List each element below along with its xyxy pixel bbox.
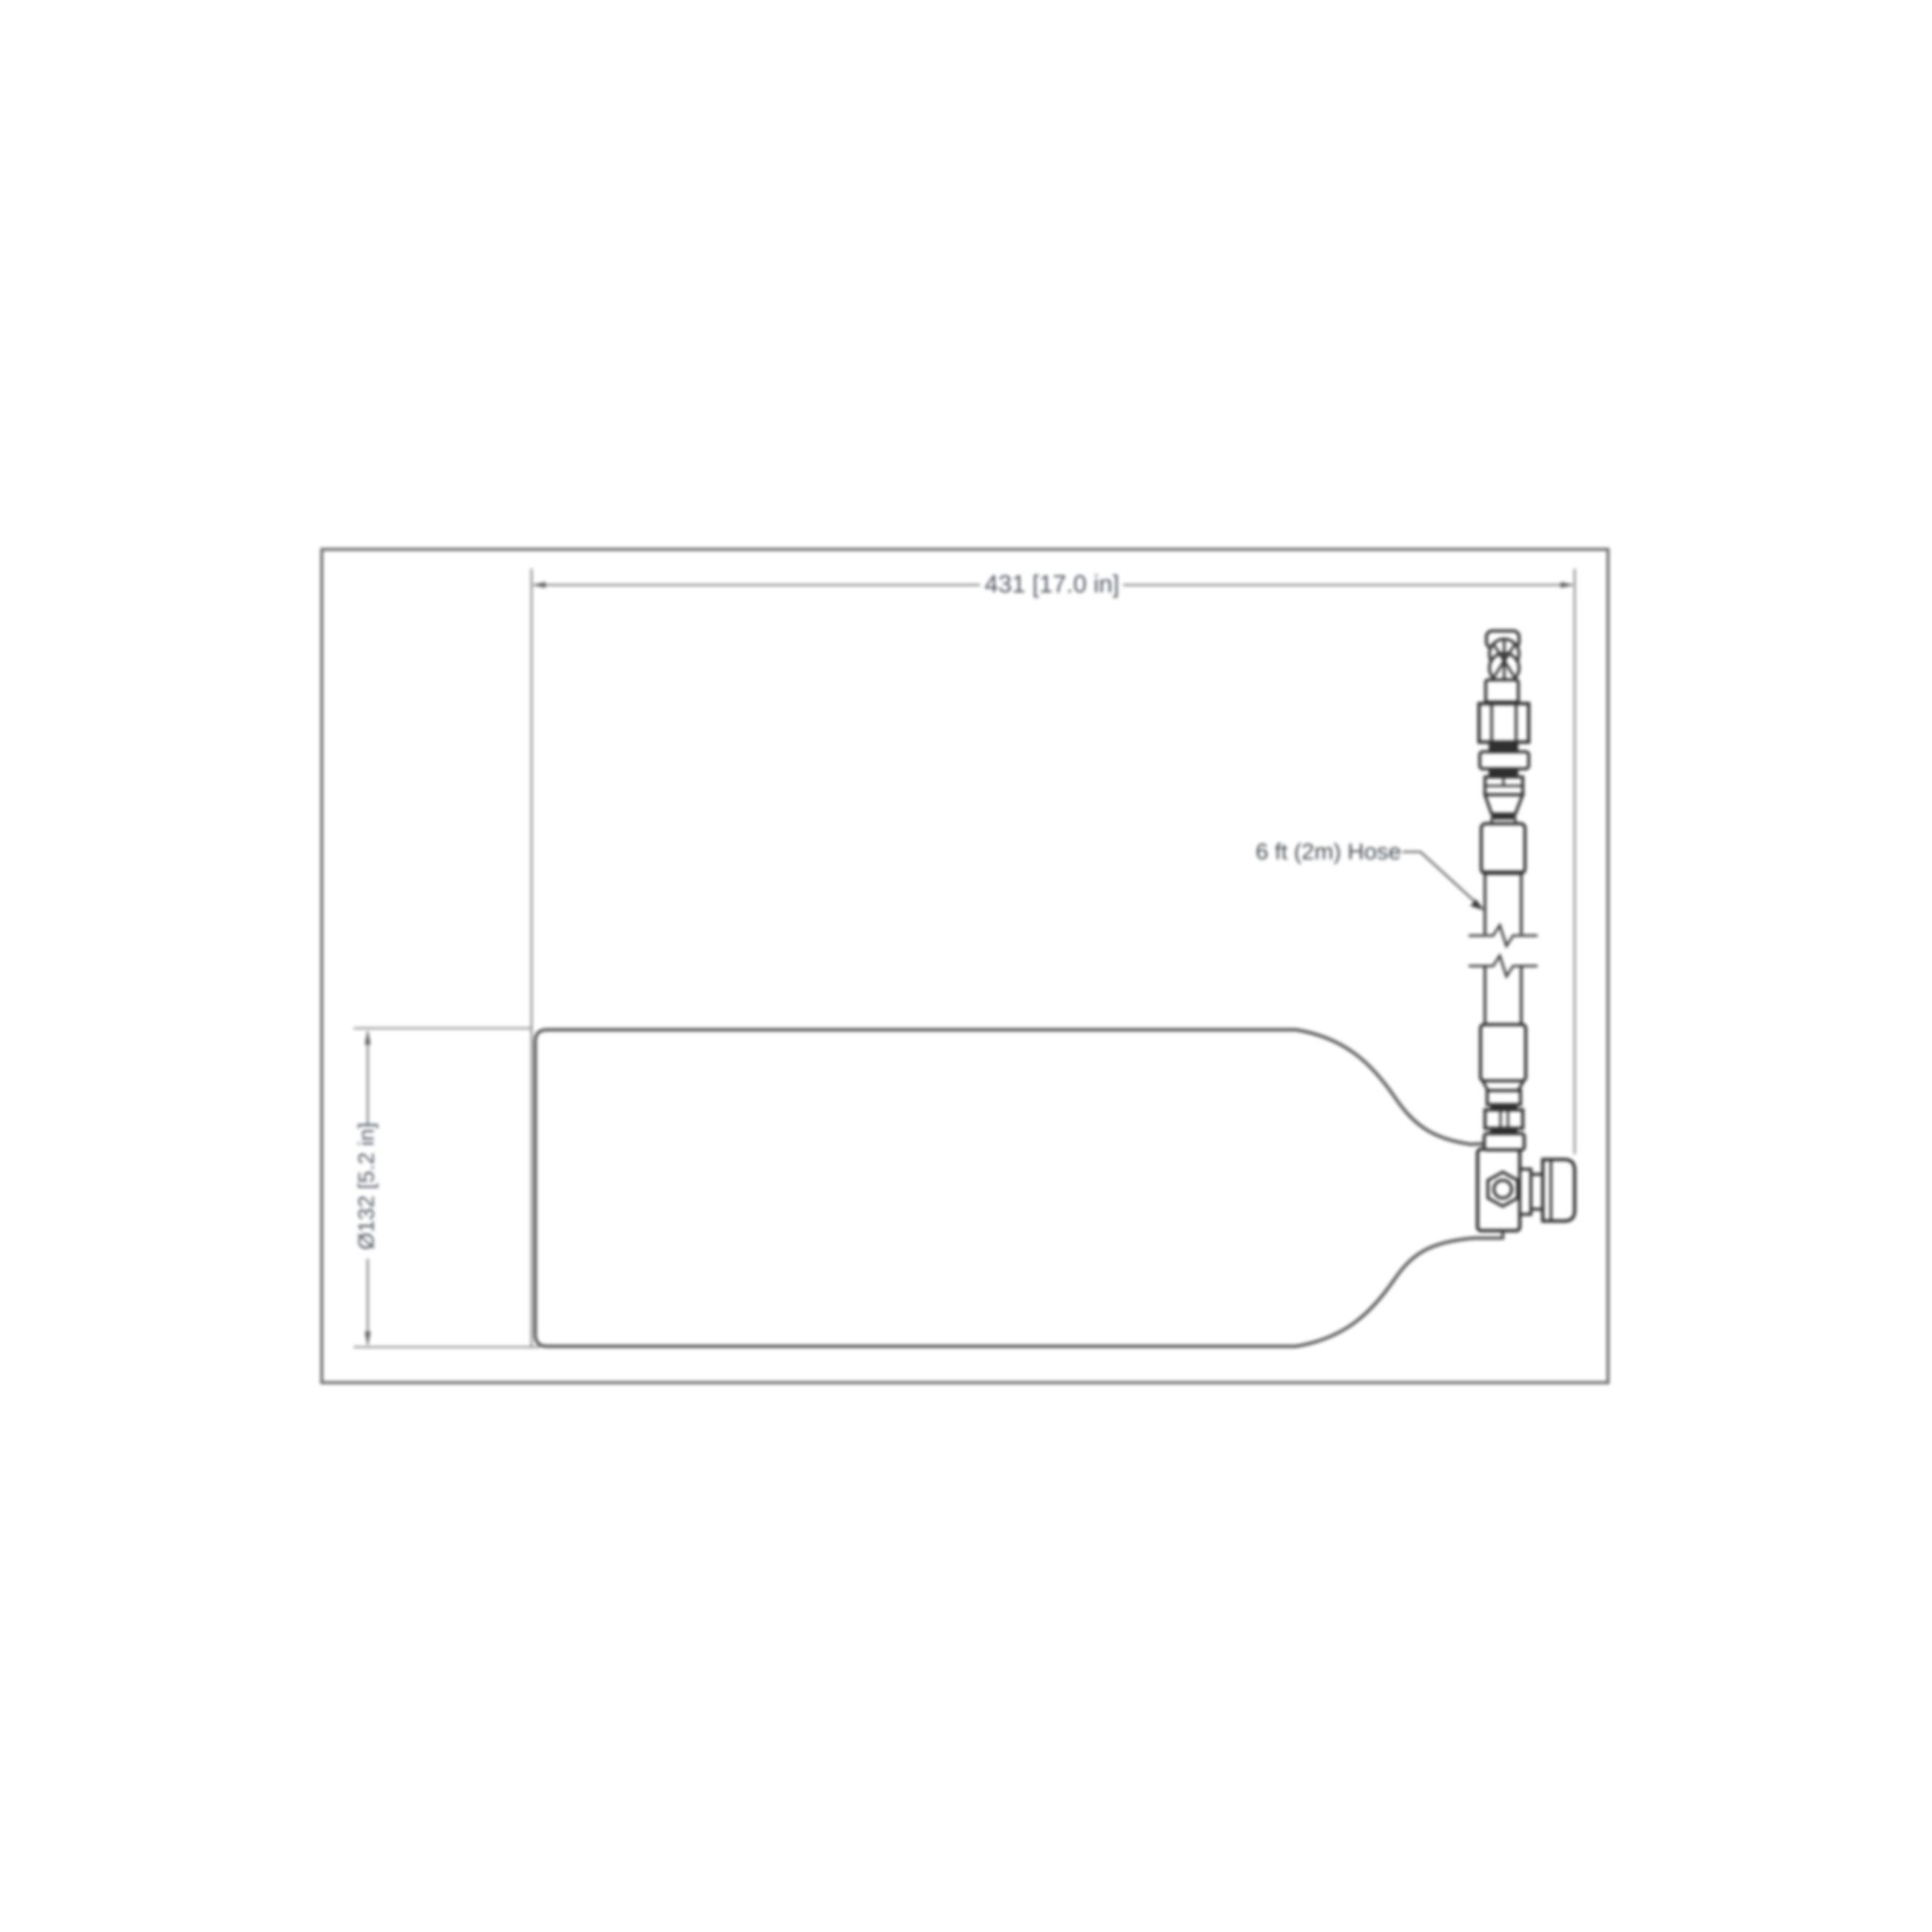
svg-text:Ø132 [5.2 in]: Ø132 [5.2 in] (354, 1122, 379, 1250)
svg-text:431 [17.0 in]: 431 [17.0 in] (985, 570, 1119, 598)
svg-text:6 ft (2m) Hose: 6 ft (2m) Hose (1256, 838, 1401, 864)
